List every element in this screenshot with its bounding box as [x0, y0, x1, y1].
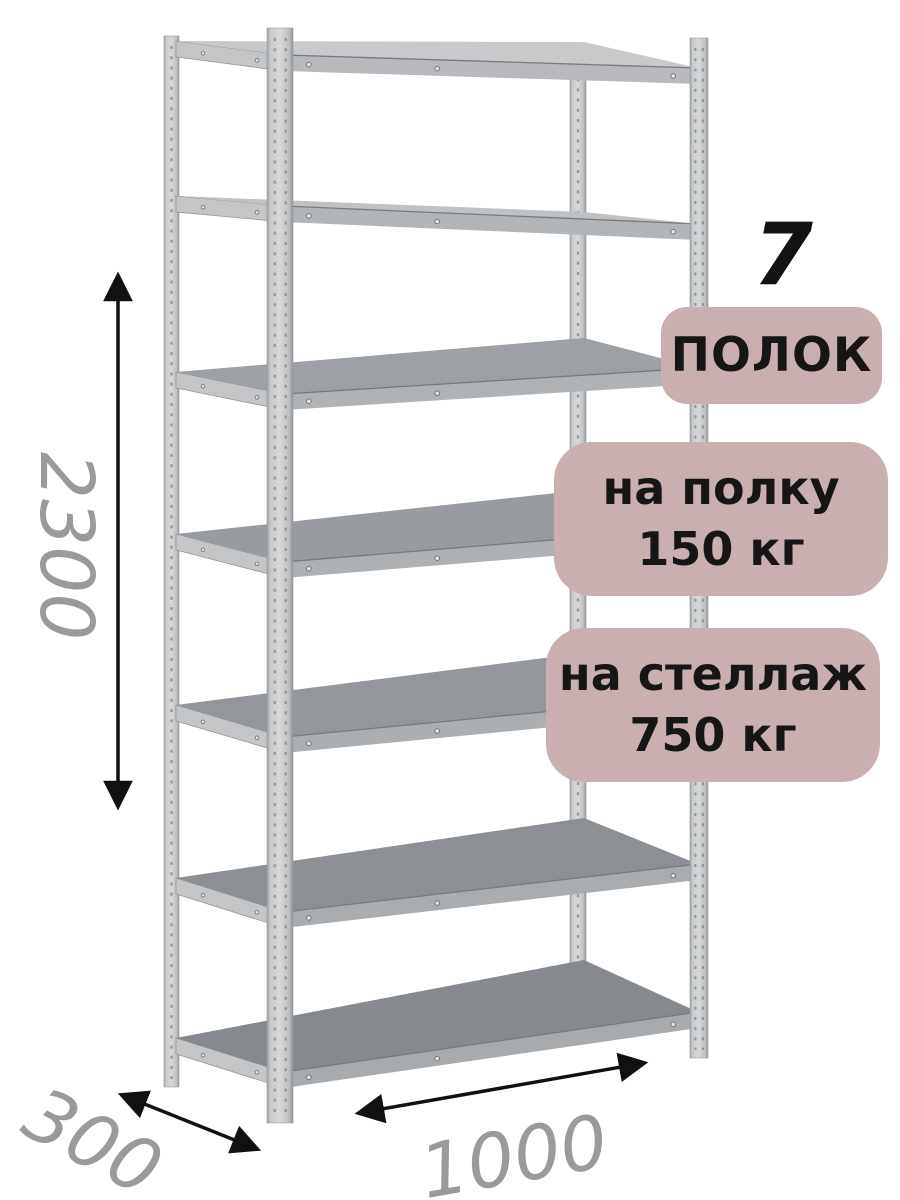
per-rack-load-line2: 750 кг: [629, 705, 796, 766]
rack-shelf: [176, 196, 698, 240]
rack-shelf: [176, 41, 698, 84]
per-rack-load-badge: на стеллаж 750 кг: [546, 628, 880, 782]
height-dimension-label: 2300: [26, 452, 106, 622]
rack-shelf: [176, 818, 698, 928]
shelf-count-number: 7: [728, 208, 838, 303]
shelving-rack-illustration: [0, 0, 900, 1200]
per-rack-load-line1: на стеллаж: [559, 644, 867, 705]
per-shelf-load-line1: на полку: [602, 458, 839, 519]
rack-post: [164, 36, 179, 1087]
rack-shelf: [176, 338, 698, 410]
rack-post: [267, 28, 293, 1123]
per-shelf-load-line2: 150 кг: [637, 519, 804, 580]
shelf-count-badge: ПОЛОК: [661, 307, 882, 404]
shelf-count-badge-label: ПОЛОК: [671, 331, 873, 381]
per-shelf-load-badge: на полку 150 кг: [554, 442, 888, 596]
product-image: 2300 300 1000 7 ПОЛОК на полку 150 кг на…: [0, 0, 900, 1200]
